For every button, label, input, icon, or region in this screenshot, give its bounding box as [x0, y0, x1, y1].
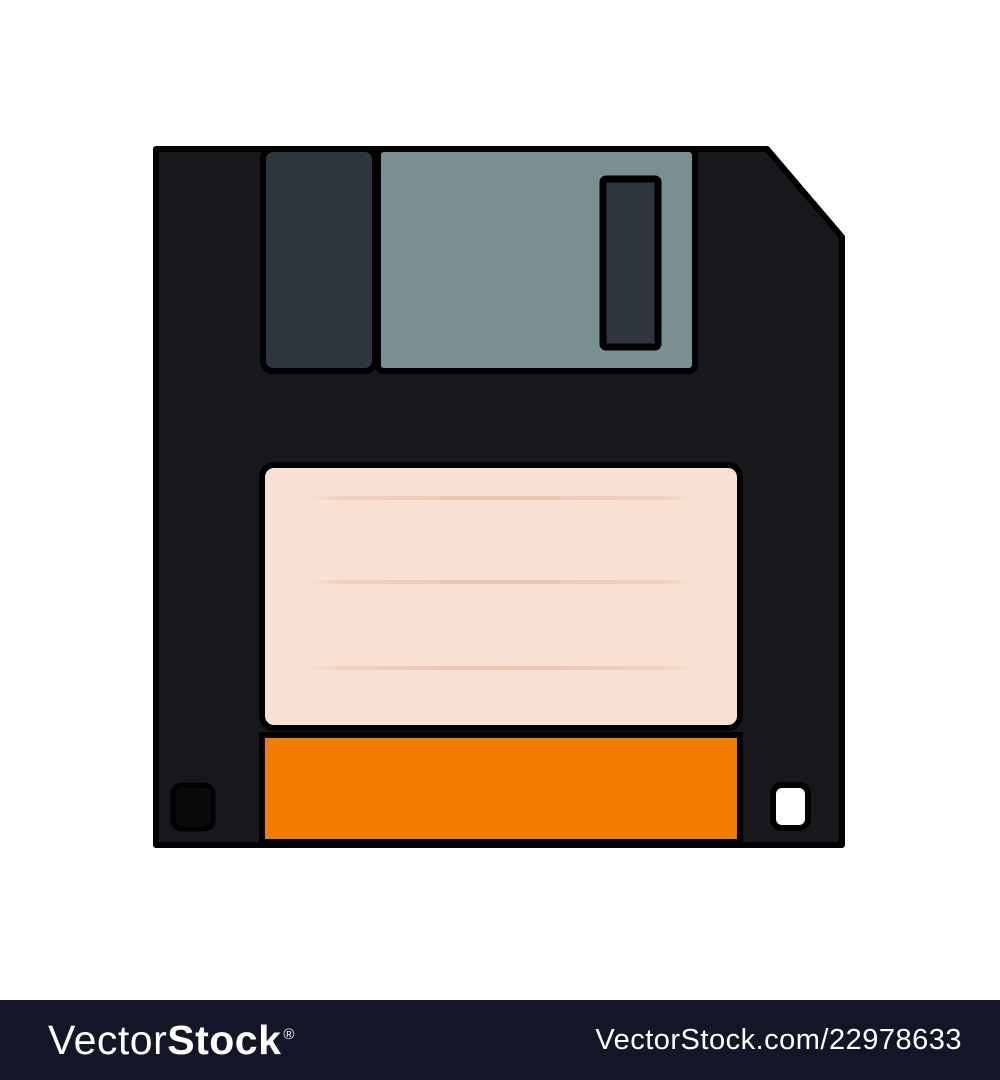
- disk-label: [262, 465, 740, 728]
- shutter-window: [263, 149, 375, 371]
- label-line: [305, 496, 697, 500]
- logo-text-bold: Stock: [167, 1017, 281, 1063]
- label-line: [305, 580, 697, 584]
- image-reference-number: VectorStock.com/22978633: [595, 1024, 962, 1057]
- registered-mark-icon: ®: [283, 1026, 295, 1043]
- floppy-disk-illustration: [153, 146, 845, 848]
- floppy-disk-svg: [153, 146, 845, 848]
- vectorstock-logo: VectorStock®: [48, 1020, 295, 1061]
- color-stripe: [262, 735, 740, 842]
- shutter-slot: [603, 179, 658, 347]
- label-line: [305, 666, 697, 670]
- stock-image-canvas: VectorStock® VectorStock.com/22978633: [0, 0, 1000, 1080]
- hd-hole: [773, 785, 808, 828]
- watermark-bar: VectorStock® VectorStock.com/22978633: [0, 1000, 1000, 1080]
- logo-text-light: Vector: [48, 1017, 167, 1063]
- write-protect-hole: [173, 785, 213, 829]
